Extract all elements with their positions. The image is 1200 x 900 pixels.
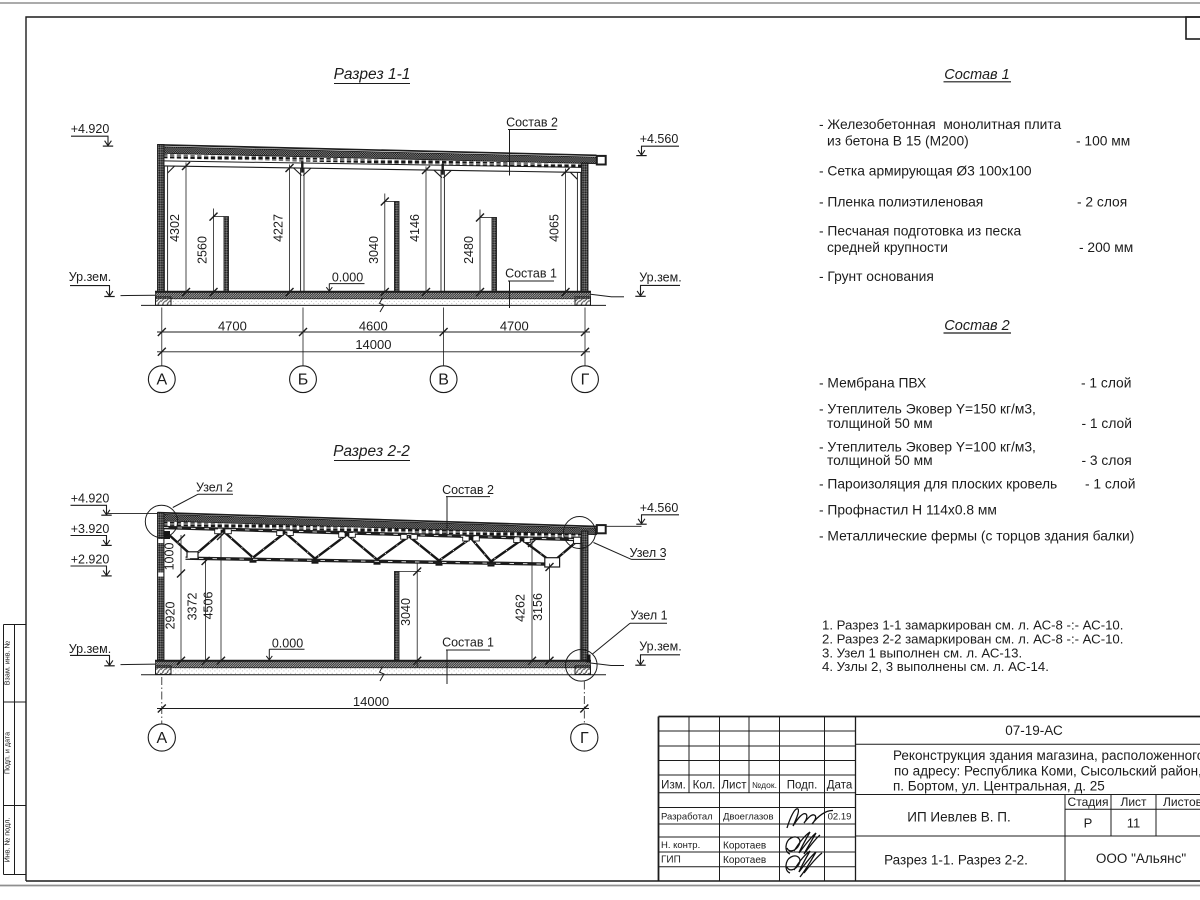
svg-text:1000: 1000 (163, 543, 177, 571)
svg-text:Разрез 2-2: Разрез 2-2 (333, 443, 410, 460)
svg-text:ООО "Альянс": ООО "Альянс" (1096, 851, 1186, 866)
svg-text:Ур.зем.: Ур.зем. (639, 271, 681, 285)
svg-text:Реконструкция здания магазина,: Реконструкция здания магазина, расположе… (893, 748, 1200, 763)
svg-text:Узел 1: Узел 1 (630, 609, 667, 623)
svg-text:+4.920: +4.920 (71, 122, 110, 136)
svg-text:- 1 слой: - 1 слой (1081, 376, 1131, 391)
svg-text:- 1 слой: - 1 слой (1082, 416, 1132, 431)
svg-text:Коротаев: Коротаев (723, 841, 766, 852)
svg-text:Дата: Дата (827, 780, 853, 792)
svg-text:+4.560: +4.560 (640, 501, 679, 515)
svg-text:- 200 мм: - 200 мм (1079, 240, 1133, 255)
svg-text:14000: 14000 (355, 337, 391, 352)
svg-text:4700: 4700 (500, 319, 529, 334)
svg-text:Разработал: Разработал (661, 812, 713, 823)
svg-text:4262: 4262 (514, 594, 528, 622)
svg-text:0.000: 0.000 (272, 636, 303, 650)
svg-text:Состав 1: Состав 1 (505, 267, 557, 281)
svg-text:Ур.зем.: Ур.зем. (69, 270, 111, 284)
svg-text:Г: Г (581, 372, 590, 389)
svg-text:Р: Р (1084, 816, 1093, 831)
svg-text:- Пленка полиэтиленовая: - Пленка полиэтиленовая (819, 195, 983, 210)
svg-text:2560: 2560 (196, 236, 210, 264)
svg-text:средней крупности: средней крупности (827, 240, 948, 255)
svg-text:п. Бортом, ул. Центральная, д.: п. Бортом, ул. Центральная, д. 25 (893, 779, 1105, 794)
svg-text:4700: 4700 (218, 319, 247, 334)
svg-text:Ур.зем.: Ур.зем. (69, 642, 111, 656)
svg-text:Кол.: Кол. (693, 780, 716, 792)
svg-text:2920: 2920 (164, 602, 178, 630)
svg-text:- Сетка армирующая Ø3 100х100: - Сетка армирующая Ø3 100х100 (819, 164, 1032, 179)
svg-text:- 100 мм: - 100 мм (1076, 134, 1130, 149)
svg-text:4227: 4227 (272, 214, 286, 242)
svg-text:11: 11 (1127, 816, 1141, 831)
svg-text:ГИП: ГИП (661, 855, 681, 866)
svg-text:Состав 2: Состав 2 (506, 116, 558, 130)
svg-text:02.19: 02.19 (828, 812, 852, 823)
svg-text:1. Разрез 1-1 замаркирован см.: 1. Разрез 1-1 замаркирован см. л. АС-8 -… (822, 618, 1123, 633)
svg-text:4302: 4302 (168, 214, 182, 242)
svg-text:Подп.: Подп. (787, 780, 818, 792)
svg-text:2480: 2480 (462, 236, 476, 264)
svg-text:3156: 3156 (531, 593, 545, 621)
svg-text:толщиной 50 мм: толщиной 50 мм (827, 453, 933, 468)
svg-text:0.000: 0.000 (332, 271, 363, 285)
svg-text:4600: 4600 (359, 319, 388, 334)
svg-text:Стадия: Стадия (1068, 795, 1109, 809)
svg-text:из бетона В 15 (М200): из бетона В 15 (М200) (827, 134, 969, 149)
svg-text:4. Узлы 2, 3 выполнены см. л.: 4. Узлы 2, 3 выполнены см. л. АС-14. (822, 659, 1049, 674)
svg-text:Разрез 1-1. Разрез 2-2.: Разрез 1-1. Разрез 2-2. (884, 853, 1028, 868)
svg-text:Н. контр.: Н. контр. (661, 840, 700, 851)
svg-text:- Железобетонная монолитная п: - Железобетонная монолитная плита (819, 117, 1062, 132)
svg-text:- 3 слоя: - 3 слоя (1082, 453, 1132, 468)
svg-text:Изм.: Изм. (661, 780, 686, 792)
svg-text:14000: 14000 (353, 694, 389, 709)
svg-text:Состав 1: Состав 1 (442, 636, 494, 650)
svg-text:Двоеглазов: Двоеглазов (723, 812, 774, 823)
svg-text:2. Разрез 2-2 замаркирован см.: 2. Разрез 2-2 замаркирован см. л. АС-8 -… (822, 632, 1123, 647)
svg-text:толщиной 50 мм: толщиной 50 мм (827, 416, 933, 431)
svg-text:07-19-АС: 07-19-АС (1005, 723, 1063, 738)
svg-text:Состав 2: Состав 2 (944, 318, 1009, 334)
svg-text:3372: 3372 (186, 593, 200, 621)
svg-text:Г: Г (580, 730, 589, 747)
svg-text:- Грунт основания: - Грунт основания (819, 269, 934, 284)
svg-text:- Профнастил Н 114х0.8 мм: - Профнастил Н 114х0.8 мм (819, 503, 997, 518)
svg-text:по адресу: Республика Коми, Сы: по адресу: Республика Коми, Сысольский р… (894, 764, 1200, 779)
svg-text:Листов: Листов (1163, 795, 1200, 809)
svg-text:- Песчаная подготовка из песка: - Песчаная подготовка из песка (819, 224, 1021, 239)
svg-text:Подп. и дата: Подп. и дата (3, 732, 12, 774)
svg-text:Лист: Лист (722, 780, 748, 792)
svg-text:Ур.зем.: Ур.зем. (639, 640, 681, 654)
svg-text:Инв. № подл.: Инв. № подл. (3, 818, 12, 863)
svg-text:+3.920: +3.920 (71, 522, 110, 536)
svg-text:3040: 3040 (399, 598, 413, 626)
svg-text:4146: 4146 (408, 214, 422, 242)
svg-text:Коротаев: Коротаев (723, 855, 766, 866)
svg-text:+4.920: +4.920 (71, 492, 110, 506)
svg-text:- 1 слой: - 1 слой (1085, 477, 1135, 492)
svg-text:3040: 3040 (367, 236, 381, 264)
svg-text:Узел 2: Узел 2 (196, 481, 233, 495)
svg-text:Лист: Лист (1120, 795, 1147, 809)
svg-text:- Утеплитель Эковер Y=150 кг/м: - Утеплитель Эковер Y=150 кг/м3, (819, 402, 1036, 417)
svg-text:В: В (438, 372, 449, 389)
svg-text:- Пароизоляция для плоских кро: - Пароизоляция для плоских кровель (819, 477, 1057, 492)
svg-text:- Металлические фермы (с торцо: - Металлические фермы (с торцов здания б… (819, 529, 1134, 544)
svg-text:Разрез 1-1: Разрез 1-1 (334, 66, 411, 83)
svg-text:- Мембрана ПВХ: - Мембрана ПВХ (819, 376, 926, 391)
svg-text:- 2 слоя: - 2 слоя (1077, 195, 1127, 210)
svg-text:Состав 2: Состав 2 (442, 483, 494, 497)
svg-text:4506: 4506 (202, 592, 216, 620)
svg-text:+2.920: +2.920 (71, 552, 110, 566)
svg-text:ИП Иевлев В. П.: ИП Иевлев В. П. (907, 810, 1011, 825)
svg-text:Взам. инв. №: Взам. инв. № (3, 640, 12, 685)
svg-text:Узел 3: Узел 3 (629, 546, 666, 560)
svg-text:А: А (156, 372, 167, 389)
svg-text:Б: Б (298, 372, 309, 389)
svg-text:А: А (156, 730, 167, 747)
svg-text:4065: 4065 (548, 214, 562, 242)
svg-text:+4.560: +4.560 (640, 132, 679, 146)
svg-text:№док.: №док. (752, 780, 777, 790)
svg-text:Состав 1: Состав 1 (944, 67, 1009, 83)
